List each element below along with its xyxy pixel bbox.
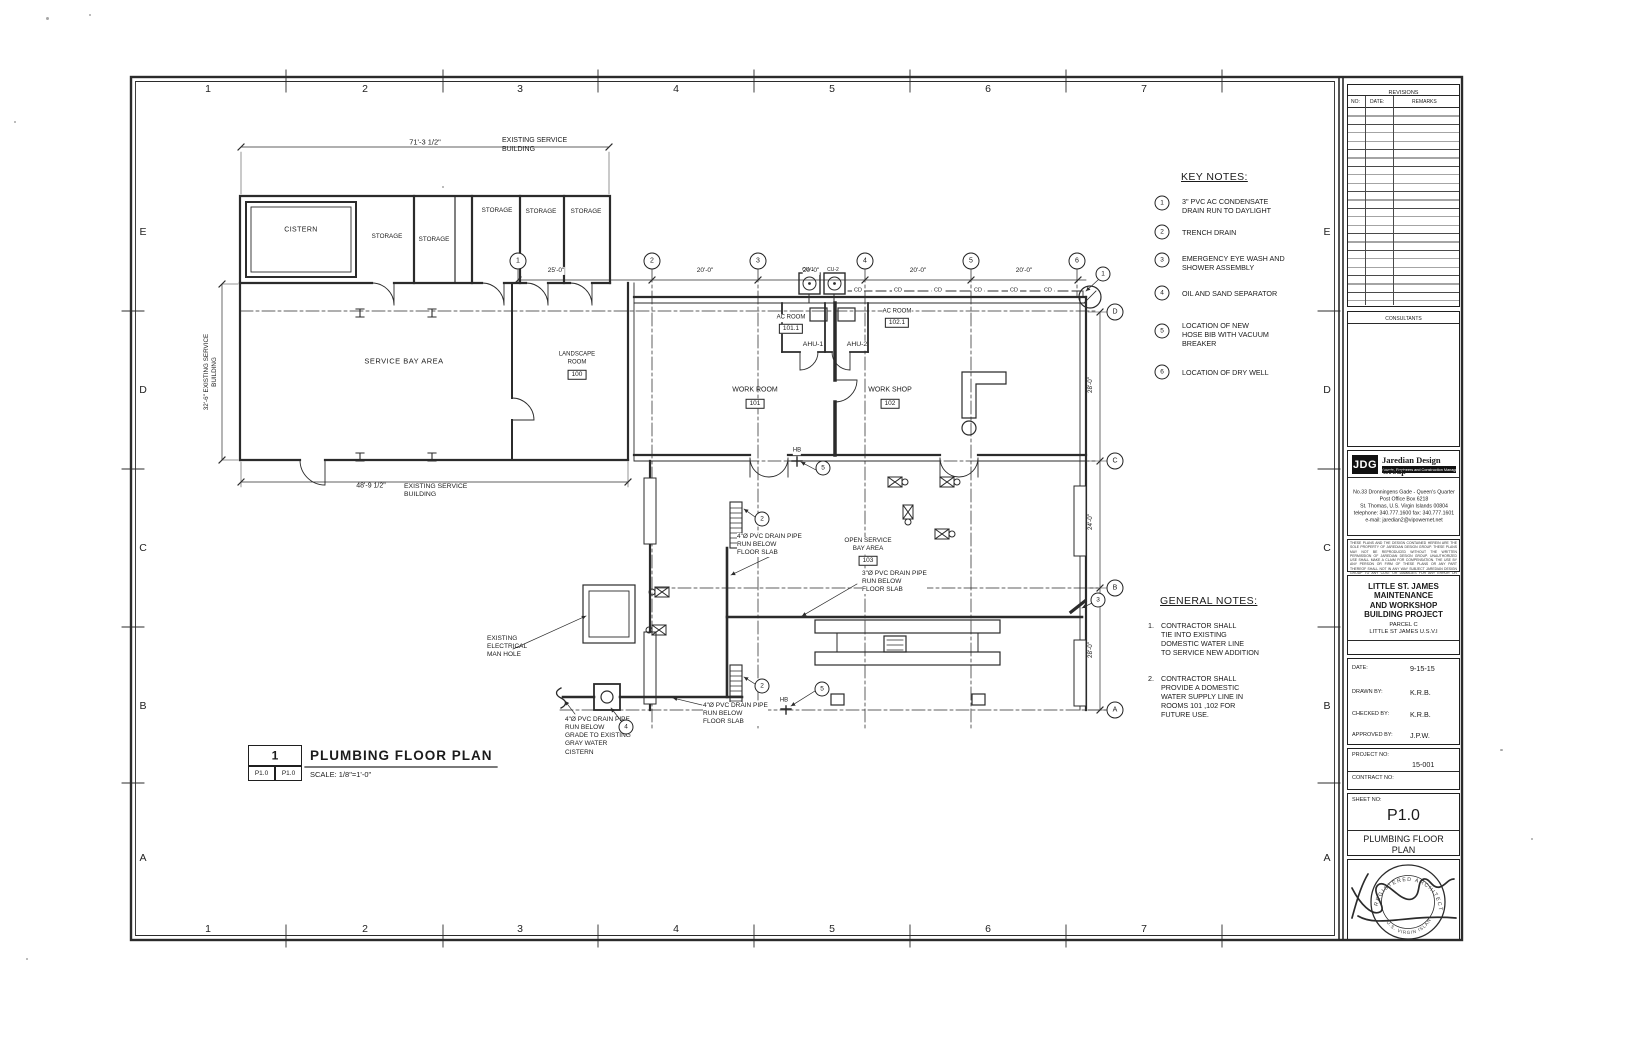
vehicle-lift: [815, 620, 1000, 705]
project-no-label: PROJECT NO:: [1352, 752, 1389, 759]
view-title-text: PLUMBING FLOOR PLAN: [310, 748, 493, 765]
grid-bubble-1: 1: [510, 253, 527, 270]
hose-bib-symbols: [781, 457, 802, 714]
zone-number-bottom: 3: [517, 923, 523, 935]
dim-25: 25'-0": [548, 267, 565, 275]
label-cu-1: CU-1: [802, 267, 814, 273]
revisions-col-remarks: REMARKS: [1412, 99, 1437, 105]
dim-left: 32'-6" EXISTING SERVICE BUILDING: [203, 334, 219, 410]
firm-address: No.33 Dronningens Gade - Queen's Quarter…: [1349, 489, 1459, 524]
condensing-units: [799, 273, 845, 303]
label-ahu-1: AHU-1: [803, 341, 823, 349]
zone-number-bottom: 7: [1141, 923, 1147, 935]
sheet-no-block: SHEET NO: P1.0 PLUMBING FLOOR PLAN: [1347, 793, 1460, 856]
key-note-bubble: 1: [1155, 196, 1170, 211]
key-note-text: OIL AND SAND SEPARATOR: [1182, 289, 1277, 298]
dim-right-3: 28'-0": [1087, 642, 1095, 658]
scan-speck: [26, 958, 28, 960]
zone-letter-left: C: [139, 542, 147, 554]
zone-letter-right: B: [1323, 700, 1330, 712]
dim-right-1: 28'-0": [1087, 377, 1095, 393]
room-storage: STORAGE: [419, 236, 450, 244]
stamp-arc-bottom-text: U.S. VIRGIN ISLANDS: [0, 0, 1432, 935]
zone-number-top: 2: [362, 83, 368, 95]
zone-number-top: 5: [829, 83, 835, 95]
note-3pvc: 3"Ø PVC DRAIN PIPE RUN BELOW FLOOR SLAB: [862, 570, 927, 594]
dim-20: 20'-0": [697, 267, 714, 275]
oil-sand-separator: [594, 684, 620, 710]
view-ref-a: P1.0: [255, 769, 268, 777]
sheet-title: PLUMBING FLOOR PLAN: [1349, 834, 1459, 857]
zone-number-bottom: 5: [829, 923, 835, 935]
note-4pvc-1: 4"Ø PVC DRAIN PIPE RUN BELOW FLOOR SLAB: [737, 533, 802, 557]
sheet-no-label: SHEET NO:: [1352, 797, 1382, 804]
grid-bubble-6: 6: [1069, 253, 1086, 270]
architect-stamp: REGISTERED ARCHITECT U.S. VIRGIN ISLANDS: [0, 0, 1445, 939]
zone-number-top: 6: [985, 83, 991, 95]
general-note-num: 1.: [1148, 621, 1154, 630]
dim-20: 20'-0": [910, 267, 927, 275]
approved-by-value: J.P.W.: [1410, 731, 1430, 740]
key-note-bubble: 4: [1155, 286, 1170, 301]
room-cistern: CISTERN: [284, 227, 318, 236]
room-open-bay: OPEN SERVICE BAY AREA: [844, 537, 891, 553]
work-bench: [962, 372, 1006, 435]
general-note-text: CONTRACTOR SHALL TIE INTO EXISTING DOMES…: [1161, 621, 1259, 657]
doors-addition: [750, 380, 978, 477]
scan-speck: [1500, 749, 1503, 751]
room-number-101: 101: [746, 399, 765, 409]
view-number-box: 1: [248, 745, 302, 766]
dim-right-2: 24'-0": [1087, 514, 1095, 530]
label-cd: CD: [972, 288, 984, 295]
view-ref-box-b: P1.0: [275, 766, 302, 781]
firm-name: Jaredian Design Group: [1382, 455, 1459, 476]
room-service-bay: SERVICE BAY AREA: [364, 356, 443, 365]
keynote-ref-5b: 5: [815, 682, 830, 697]
checked-by-label: CHECKED BY:: [1352, 711, 1389, 718]
keynote-ref-4: 4: [619, 720, 634, 735]
room-storage: STORAGE: [526, 208, 557, 216]
zone-letter-left: B: [139, 700, 146, 712]
key-note-text: 3" PVC AC CONDENSATE DRAIN RUN TO DAYLIG…: [1182, 197, 1271, 215]
doors-upper-wing: [372, 283, 592, 305]
view-number: 1: [272, 748, 279, 763]
dim-overall-top: 71'-3 1/2": [409, 137, 441, 146]
column-symbols: [356, 309, 436, 461]
sheet-no-value: P1.0: [1387, 806, 1420, 826]
drawn-by-value: K.R.B.: [1410, 688, 1431, 697]
meta-block: DATE: 9-15-15 DRAWN BY: K.R.B. CHECKED B…: [1347, 658, 1460, 745]
label-cd: CD: [892, 288, 904, 295]
grid-lines: [240, 269, 1106, 730]
project-block: LITTLE ST. JAMES MAINTENANCE AND WORKSHO…: [1347, 575, 1460, 655]
zone-letter-right: D: [1323, 384, 1331, 396]
contract-no-label: CONTRACT NO:: [1352, 775, 1394, 782]
revisions-title: REVISIONS: [1389, 90, 1419, 97]
zone-letter-left: A: [139, 852, 146, 864]
drawing-sheet: 1 2 3 4 5 6 7 1 2 3 4 5 6 7 E D C B A E …: [0, 0, 1627, 1062]
zone-letter-right: A: [1323, 852, 1330, 864]
keynote-ref-5a: 5: [816, 461, 831, 476]
key-note-text: LOCATION OF NEW HOSE BIB WITH VACUUM BRE…: [1182, 321, 1269, 348]
revisions-col-date: DATE:: [1370, 99, 1384, 105]
room-number-102: 102: [881, 399, 900, 409]
grid-bubble-a: A: [1107, 702, 1124, 719]
zone-number-bottom: 6: [985, 923, 991, 935]
key-notes-title: KEY NOTES:: [1181, 171, 1248, 184]
label-cd: CD: [852, 288, 864, 295]
consultants-block: CONSULTANTS: [1347, 311, 1460, 447]
dim-20: 20'-0": [1016, 267, 1033, 275]
electrical-manhole: [583, 585, 635, 643]
general-note-text: CONTRACTOR SHALL PROVIDE A DOMESTIC WATE…: [1161, 674, 1243, 719]
revisions-col-no: NO:: [1351, 99, 1360, 105]
room-number-103: 103: [859, 556, 878, 566]
grid-bubble-b: B: [1107, 580, 1124, 597]
view-scale-text: SCALE: 1/8"=1'-0": [310, 770, 371, 779]
zone-number-top: 4: [673, 83, 679, 95]
ac-rooms: [782, 303, 868, 370]
note-4pvc-2: 4"Ø PVC DRAIN PIPE RUN BELOW FLOOR SLAB: [703, 702, 768, 726]
scan-speck: [1531, 838, 1533, 840]
revisions-block: REVISIONS NO: DATE: REMARKS: [1347, 84, 1460, 307]
note-manhole: EXISTING ELECTRICAL MAN HOLE: [487, 635, 527, 659]
jdg-logo: JDG: [1352, 455, 1378, 474]
scan-speck: [89, 14, 91, 16]
scan-speck: [442, 186, 444, 188]
room-storage: STORAGE: [571, 208, 602, 216]
room-work-room: WORK ROOM: [732, 387, 778, 396]
zone-number-bottom: 2: [362, 923, 368, 935]
label-cd: CD: [1042, 288, 1054, 295]
room-work-shop: WORK SHOP: [868, 387, 912, 396]
keynote-ref-3: 3: [1091, 593, 1106, 608]
keynote-ref-2b: 2: [755, 679, 770, 694]
scan-speck: [46, 17, 49, 20]
zone-letter-right: E: [1323, 226, 1330, 238]
room-landscape: LANDSCAPE ROOM: [559, 352, 595, 367]
date-value: 9-15-15: [1410, 664, 1435, 673]
label-cu-2: CU-2: [827, 267, 839, 273]
checked-by-value: K.R.B.: [1410, 710, 1431, 719]
note-existing-building-top: EXISTING SERVICE BUILDING: [502, 137, 567, 155]
disclaimer-text: THESE PLANS AND THE DESIGN CONTAINED HER…: [1350, 541, 1457, 579]
project-location: LITTLE ST JAMES U.S.V.I: [1369, 629, 1437, 636]
label-hb-2: HB: [780, 697, 788, 705]
grid-bubble-c: C: [1107, 453, 1124, 470]
label-hb-1: HB: [793, 447, 801, 455]
grid-bubble-5: 5: [963, 253, 980, 270]
label-ahu-2: AHU-2: [847, 341, 867, 349]
firm-block: JDG Jaredian Design Group Architects, En…: [1347, 450, 1460, 536]
keynote-ref-2: 2: [755, 512, 770, 527]
zone-number-bottom: 4: [673, 923, 679, 935]
shop-equipment: [646, 477, 960, 635]
key-note-text: EMERGENCY EYE WASH AND SHOWER ASSEMBLY: [1182, 254, 1285, 272]
zone-letter-right: C: [1323, 542, 1331, 554]
general-note-num: 2.: [1148, 674, 1154, 683]
grid-bubble-2: 2: [644, 253, 661, 270]
key-note-bubble: 3: [1155, 253, 1170, 268]
walls-addition: [634, 297, 1086, 710]
approved-by-label: APPROVED BY:: [1352, 732, 1393, 739]
stamp-block: [1347, 859, 1460, 941]
doors-service-bay: [300, 398, 534, 485]
zone-letter-left: D: [139, 384, 147, 396]
disclaimer-block: THESE PLANS AND THE DESIGN CONTAINED HER…: [1347, 539, 1460, 572]
note-existing-building-bottom: EXISTING SERVICE BUILDING: [404, 483, 467, 500]
room-number-102-1: 102.1: [885, 318, 909, 328]
key-note-text: TRENCH DRAIN: [1182, 228, 1236, 237]
grid-bubble-4: 4: [857, 253, 874, 270]
view-ref-box-a: P1.0: [248, 766, 275, 781]
room-ac-2: AC ROOM: [883, 308, 912, 316]
label-cd: CD: [932, 288, 944, 295]
grid-bubble-d: D: [1107, 304, 1124, 321]
date-label: DATE:: [1352, 665, 1368, 672]
dry-well: [1079, 286, 1101, 308]
room-storage: STORAGE: [482, 207, 513, 215]
room-number-101-1: 101.1: [779, 324, 803, 334]
zone-number-top: 1: [205, 83, 211, 95]
scan-speck: [14, 121, 16, 123]
zone-letter-left: E: [139, 226, 146, 238]
label-cd: CD: [1008, 288, 1020, 295]
eye-wash-station: [1071, 601, 1085, 612]
room-ac-1: AC ROOM: [777, 314, 806, 322]
key-note-bubble: 5: [1155, 324, 1170, 339]
project-no-value: 15-001: [1412, 760, 1434, 769]
consultants-title: CONSULTANTS: [1385, 316, 1421, 322]
key-note-text: LOCATION OF DRY WELL: [1182, 368, 1269, 377]
zone-number-top: 3: [517, 83, 523, 95]
dim-48: 48'-9 1/2": [356, 483, 386, 492]
project-no-block: PROJECT NO: 15-001 CONTRACT NO:: [1347, 748, 1460, 790]
key-note-bubble: 6: [1155, 365, 1170, 380]
drawn-by-label: DRAWN BY:: [1352, 689, 1383, 696]
zone-number-bottom: 1: [205, 923, 211, 935]
project-name: LITTLE ST. JAMES MAINTENANCE AND WORKSHO…: [1349, 582, 1459, 620]
svg-text:U.S. VIRGIN ISLANDS: U.S. VIRGIN ISLANDS: [0, 0, 1432, 935]
room-number-100: 100: [568, 370, 587, 380]
zone-number-top: 7: [1141, 83, 1147, 95]
grid-bubble-3: 3: [750, 253, 767, 270]
dimension-lines: [219, 144, 1107, 713]
view-ref-b: P1.0: [282, 769, 295, 777]
room-storage: STORAGE: [372, 233, 403, 241]
general-notes-title: GENERAL NOTES:: [1160, 595, 1257, 608]
key-note-bubble: 2: [1155, 225, 1170, 240]
keynote-ref-1: 1: [1096, 267, 1111, 282]
